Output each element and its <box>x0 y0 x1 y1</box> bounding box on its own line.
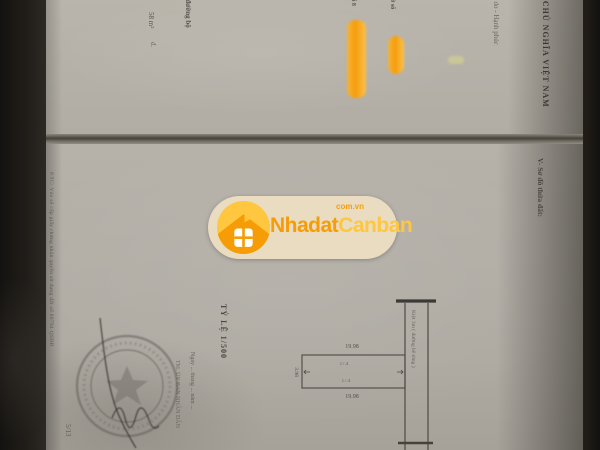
logo-brand-part1: Nhadat <box>270 214 338 237</box>
house-icon <box>217 201 270 254</box>
section-v-title: V- Sơ đồ thửa đất: <box>536 158 545 217</box>
logo-domain-label: com.vn <box>336 202 364 211</box>
plot-rectangle <box>302 355 405 388</box>
photo-of-land-certificate: CỘNG HÒA XÃ HỘI CHỦ NGHĨA VIỆT NAM Độc l… <box>0 0 600 450</box>
road-name-label: Kiệt 3m ( đường bê tông ) <box>410 310 416 368</box>
national-motto-line1: CỘNG HÒA XÃ HỘI CHỦ NGHĨA VIỆT NAM <box>541 0 550 108</box>
logo-brand-part2: Canban <box>338 214 412 237</box>
logo-brand-text: NhadatCanban <box>270 214 412 238</box>
road-fragment-text: g đường bộ <box>184 0 192 28</box>
dimension-arrow-left-icon <box>304 370 310 374</box>
highlighted-entry-2-label: tờ số <box>389 0 395 9</box>
signature-squiggle <box>112 408 159 428</box>
highlighted-entry-1-label: số 8 <box>350 0 356 6</box>
photo-background-right <box>582 0 600 450</box>
highlighter-mark-large <box>347 20 366 98</box>
official-stamp-and-signature <box>60 318 205 450</box>
highlighter-dash <box>448 56 464 64</box>
dimension-arrow-right-icon <box>397 370 403 374</box>
unit-fragment-text: đ. <box>149 42 157 47</box>
highlighter-mark-small <box>388 36 404 74</box>
parcel-diagram: 19.98 19.98 17.4 17.4 3.98 <box>270 292 445 450</box>
dim-depth-left: 3.98 <box>293 367 299 377</box>
dim-width-bottom: 19.98 <box>345 394 359 400</box>
national-motto-line2: Độc lập - Tự do - Hạnh phúc <box>492 0 500 45</box>
photo-background-left <box>0 0 46 450</box>
page-seam <box>46 134 583 144</box>
registry-line: P.TC: Vào sổ cấp giấy chứng nhận quyền s… <box>48 172 54 347</box>
map-scale-label: TỶ LỆ 1/500 <box>219 304 228 359</box>
dim-width-top: 19.98 <box>345 344 359 350</box>
dim-inner-top: 17.4 <box>340 362 349 367</box>
document-top-page <box>46 0 583 134</box>
area-fragment-text: 58 m² <box>147 12 155 28</box>
watermark-logo: com.vn NhadatCanban <box>208 196 397 259</box>
dim-inner-bottom: 17.4 <box>342 379 351 384</box>
